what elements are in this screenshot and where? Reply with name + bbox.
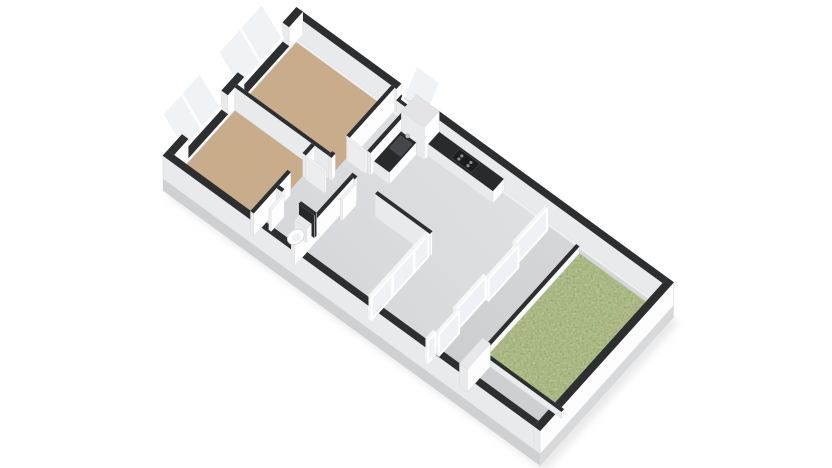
cooktop-burner-0 bbox=[460, 154, 463, 157]
wall-bed1-se-b-face bbox=[251, 211, 254, 236]
wall-bed1-se-a-face bbox=[303, 153, 306, 178]
floorplan-svg bbox=[0, 0, 832, 468]
cooktop-burner-1 bbox=[469, 161, 472, 164]
bedroom-3-door-leaf-face bbox=[340, 198, 342, 221]
wall-pantry-se-face bbox=[368, 151, 371, 176]
wall-bed2-se-b-face bbox=[332, 154, 336, 181]
cooktop-burner-2 bbox=[457, 157, 460, 160]
sink-faucet bbox=[406, 134, 410, 138]
wall-hall-living-face bbox=[430, 231, 432, 257]
wall-wc-dark-face bbox=[314, 213, 316, 239]
wall-bed2-se-b-face bbox=[328, 155, 331, 180]
cooktop-burner-3 bbox=[466, 164, 469, 167]
floorplan-3d-view bbox=[0, 0, 832, 468]
walls-and-furniture-layer bbox=[162, 3, 674, 454]
wc-door-leaf-face bbox=[269, 209, 271, 232]
